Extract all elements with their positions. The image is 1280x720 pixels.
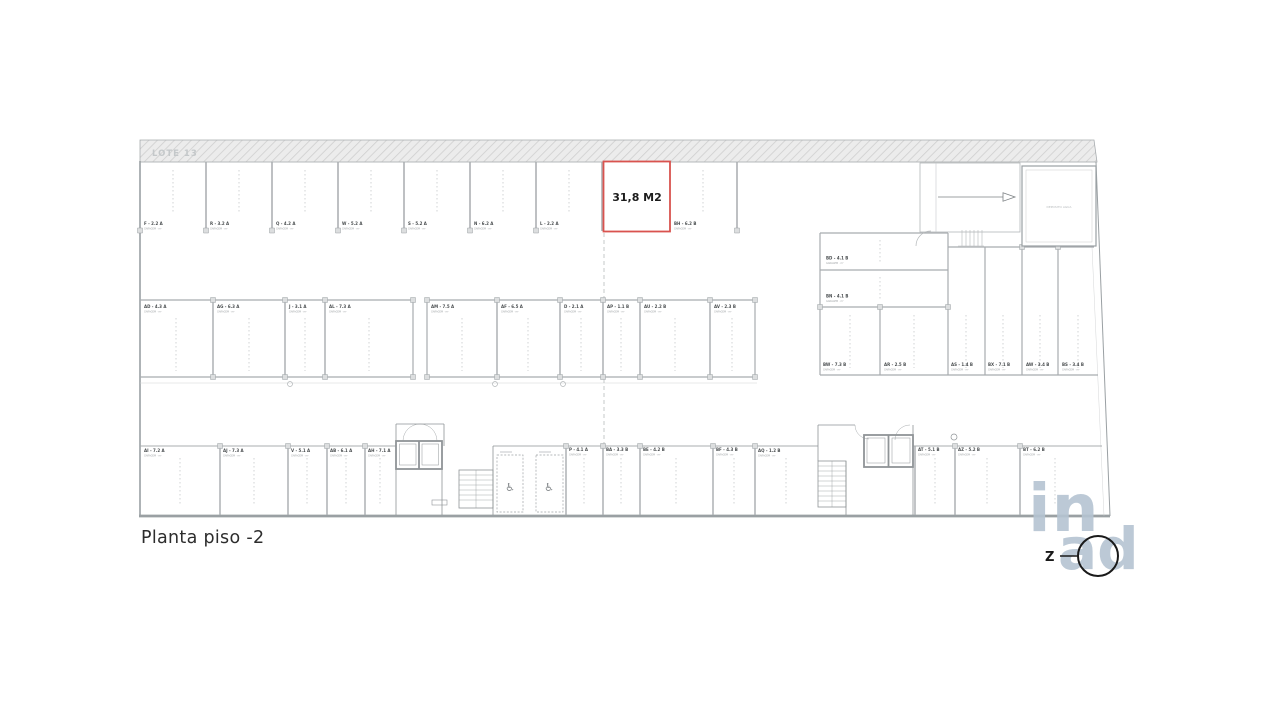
columns [818, 245, 1061, 310]
space-label: AD - 4.3 A [144, 304, 167, 309]
space-label: L - 2.2 A [540, 221, 559, 226]
space-label: BT - 6.2 B [1023, 447, 1045, 452]
floor-plan-page: LOTE 13 F - 2.2 A GARAGEM · m² R - 3.2 A… [0, 0, 1280, 720]
ramp-arrow-icon [1003, 193, 1015, 201]
elevator-cab [400, 444, 417, 465]
space-center-dashes [176, 318, 732, 371]
bottom-row-parking: AI - 7.2 A GARAGEM · m² AJ - 7.3 A GARAG… [140, 444, 1102, 516]
watermark-logo: in ad [1028, 470, 1139, 583]
space-sublabel: GARAGEM · m² [758, 455, 776, 458]
space-label: AG - 6.3 A [217, 304, 240, 309]
stair-treads [818, 461, 846, 507]
room-label: DEPOSITO AGUA [1047, 205, 1073, 209]
space-sublabel: GARAGEM · m² [958, 454, 976, 457]
space-sublabel: GARAGEM · m² [217, 311, 235, 314]
space-label: BS - 3.4 B [1062, 362, 1084, 367]
elevator-cab [867, 438, 885, 463]
space-sublabel: GARAGEM · m² [144, 455, 162, 458]
space-sublabel: GARAGEM · m² [342, 228, 360, 231]
space-sublabel: GARAGEM · m² [918, 454, 936, 457]
space-sublabel: GARAGEM · m² [606, 454, 624, 457]
space-label: AU - 2.2 B [644, 304, 666, 309]
top-row-parking: F - 2.2 A GARAGEM · m² R - 3.2 A GARAGEM… [138, 162, 740, 234]
space-sublabel: GARAGEM · m² [826, 262, 844, 265]
space-sublabel: GARAGEM · m² [540, 228, 558, 231]
elevator-cab [422, 444, 439, 465]
space-label: F - 2.2 A [144, 221, 164, 226]
highlight-area-label: 31,8 M2 [612, 191, 662, 204]
space-sublabel: GARAGEM · m² [276, 228, 294, 231]
space-sublabel: GARAGEM · m² [826, 300, 844, 303]
space-label: S - 5.2 A [408, 221, 428, 226]
stair-treads [459, 470, 493, 508]
space-sublabel: GARAGEM · m² [1026, 369, 1044, 372]
utility-box [432, 500, 447, 505]
space-sublabel: GARAGEM · m² [210, 228, 228, 231]
space-label: AV - 2.3 B [714, 304, 736, 309]
space-label: BX - 7.1 B [988, 362, 1010, 367]
floor-plan-drawing: LOTE 13 F - 2.2 A GARAGEM · m² R - 3.2 A… [0, 0, 1280, 720]
space-label: W - 5.2 A [342, 221, 363, 226]
space-sublabel: GARAGEM · m² [643, 454, 661, 457]
north-arrow-letter: Z [1045, 550, 1054, 565]
space-sublabel: GARAGEM · m² [951, 369, 969, 372]
water-deposit-room: DEPOSITO AGUA [1022, 166, 1096, 246]
space-label: BA - 3.3 B [606, 447, 628, 452]
parking-dividers [820, 233, 1098, 375]
space-label: AS - 1.4 B [951, 362, 973, 367]
space-sublabel: GARAGEM · m² [223, 455, 241, 458]
space-sublabel: GARAGEM · m² [144, 228, 162, 231]
space-sublabel: GARAGEM · m² [714, 311, 732, 314]
space-label: AZ - 5.2 B [958, 447, 980, 452]
space-sublabel: GARAGEM · m² [474, 228, 492, 231]
space-sublabel: GARAGEM · m² [716, 454, 734, 457]
space-label: BN - 4.1 B [826, 294, 848, 299]
right-slanted-wall [1096, 162, 1110, 516]
space-sublabel: GARAGEM · m² [607, 311, 625, 314]
floor-drain [493, 382, 498, 387]
space-sublabel: GARAGEM · m² [329, 311, 347, 314]
space-sublabel: GARAGEM · m² [1062, 369, 1080, 372]
wheelchair-icon: ♿ [505, 481, 515, 494]
space-sublabel: GARAGEM · m² [330, 455, 348, 458]
space-label: AP - 1.1 B [607, 304, 629, 309]
space-sublabel: GARAGEM · m² [988, 369, 1006, 372]
space-label: R - 3.2 A [210, 221, 230, 226]
space-sublabel: GARAGEM · m² [569, 454, 587, 457]
space-label: AJ - 7.3 A [223, 448, 245, 453]
space-sublabel: GARAGEM · m² [291, 455, 309, 458]
space-sublabel: GARAGEM · m² [674, 228, 692, 231]
space-label: AB - 6.1 A [330, 448, 353, 453]
space-label: D - 2.1 A [564, 304, 584, 309]
parking-dividers [213, 300, 710, 377]
space-label: Q - 4.2 A [276, 221, 296, 226]
space-center-dashes [850, 240, 1078, 368]
space-label: AF - 6.5 A [501, 304, 524, 309]
space-sublabel: GARAGEM · m² [564, 311, 582, 314]
space-label: AR - 2.5 B [884, 362, 906, 367]
space-sublabel: GARAGEM · m² [408, 228, 426, 231]
right-block-parking: BD - 4.1 B GARAGEM · m² BN - 4.1 B GARAG… [818, 233, 1099, 375]
space-label: P - 4.1 A [569, 447, 589, 452]
core-walls [818, 425, 913, 461]
space-sublabel: GARAGEM · m² [431, 311, 449, 314]
top-hatched-wall [140, 140, 1097, 162]
space-label: AL - 7.3 A [329, 304, 352, 309]
space-label: AQ - 1.2 B [758, 448, 780, 453]
elevator-cab [892, 438, 910, 463]
core-walls [396, 424, 444, 446]
stair-elevator-core-2 [818, 425, 957, 515]
lote-label: LOTE 13 [152, 149, 198, 159]
space-sublabel: GARAGEM · m² [884, 369, 902, 372]
space-center-dashes [180, 458, 1055, 506]
door-swing-arcs [403, 424, 437, 441]
space-label: BD - 4.1 B [826, 256, 848, 261]
space-label: J - 3.1 A [288, 304, 307, 309]
middle-row-parking: AD - 4.3 A GARAGEM · m² AG - 6.3 A GARAG… [140, 298, 758, 387]
space-label: BF - 4.3 B [716, 447, 738, 452]
space-label: AH - 7.1 A [368, 448, 391, 453]
space-sublabel: GARAGEM · m² [289, 311, 307, 314]
watermark-bottom: ad [1058, 515, 1139, 583]
core-walls [396, 446, 493, 515]
wheelchair-icon: ♿ [544, 481, 554, 494]
floor-drain [288, 382, 293, 387]
space-sublabel: GARAGEM · m² [144, 311, 162, 314]
space-label: BE - 4.2 B [643, 447, 665, 452]
space-sublabel: GARAGEM · m² [823, 369, 841, 372]
space-sublabel: GARAGEM · m² [644, 311, 662, 314]
floor-drain [561, 382, 566, 387]
floor-drain [951, 434, 957, 440]
space-sublabel: GARAGEM · m² [1023, 454, 1041, 457]
space-label: AW - 3.4 B [1026, 362, 1049, 367]
stair-elevator-core-1 [396, 424, 493, 515]
space-label: BW - 7.3 B [823, 362, 846, 367]
space-label: V - 5.1 A [291, 448, 311, 453]
page-title: Planta piso -2 [141, 528, 264, 548]
space-sublabel: GARAGEM · m² [501, 311, 519, 314]
space-label: AI - 7.2 A [144, 448, 166, 453]
space-sublabel: GARAGEM · m² [368, 455, 386, 458]
space-label: AM - 7.5 A [431, 304, 455, 309]
core-walls [846, 461, 913, 515]
accessible-spaces: ♿ ♿ [497, 452, 563, 512]
space-label: BH - 6.2 B [674, 221, 696, 226]
space-label: N - 6.2 A [474, 221, 494, 226]
space-label: AT - 5.1 B [918, 447, 940, 452]
